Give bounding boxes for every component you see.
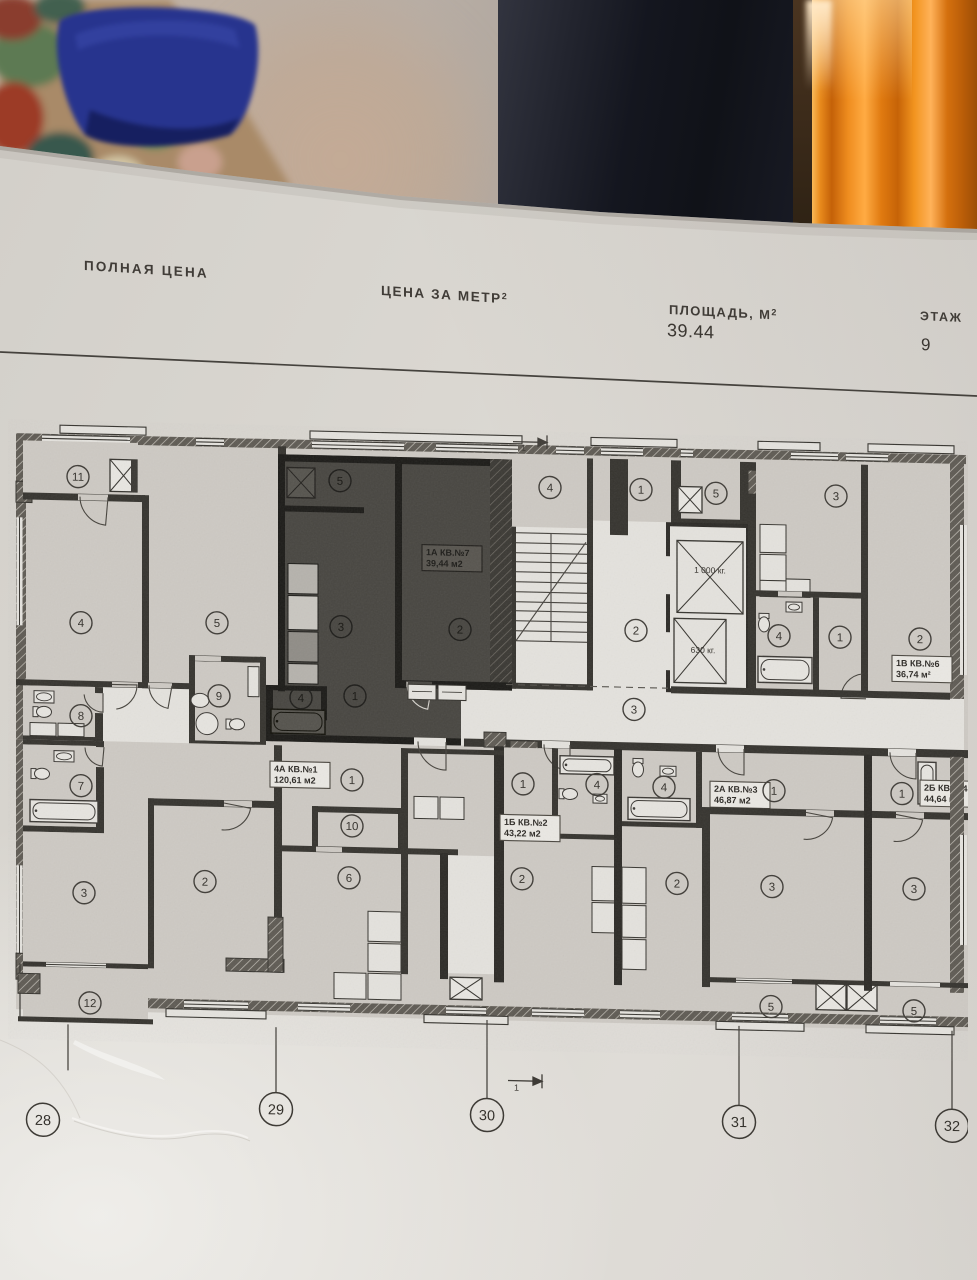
- svg-text:1: 1: [514, 1083, 519, 1093]
- svg-text:32: 32: [944, 1119, 960, 1135]
- svg-text:31: 31: [731, 1115, 747, 1131]
